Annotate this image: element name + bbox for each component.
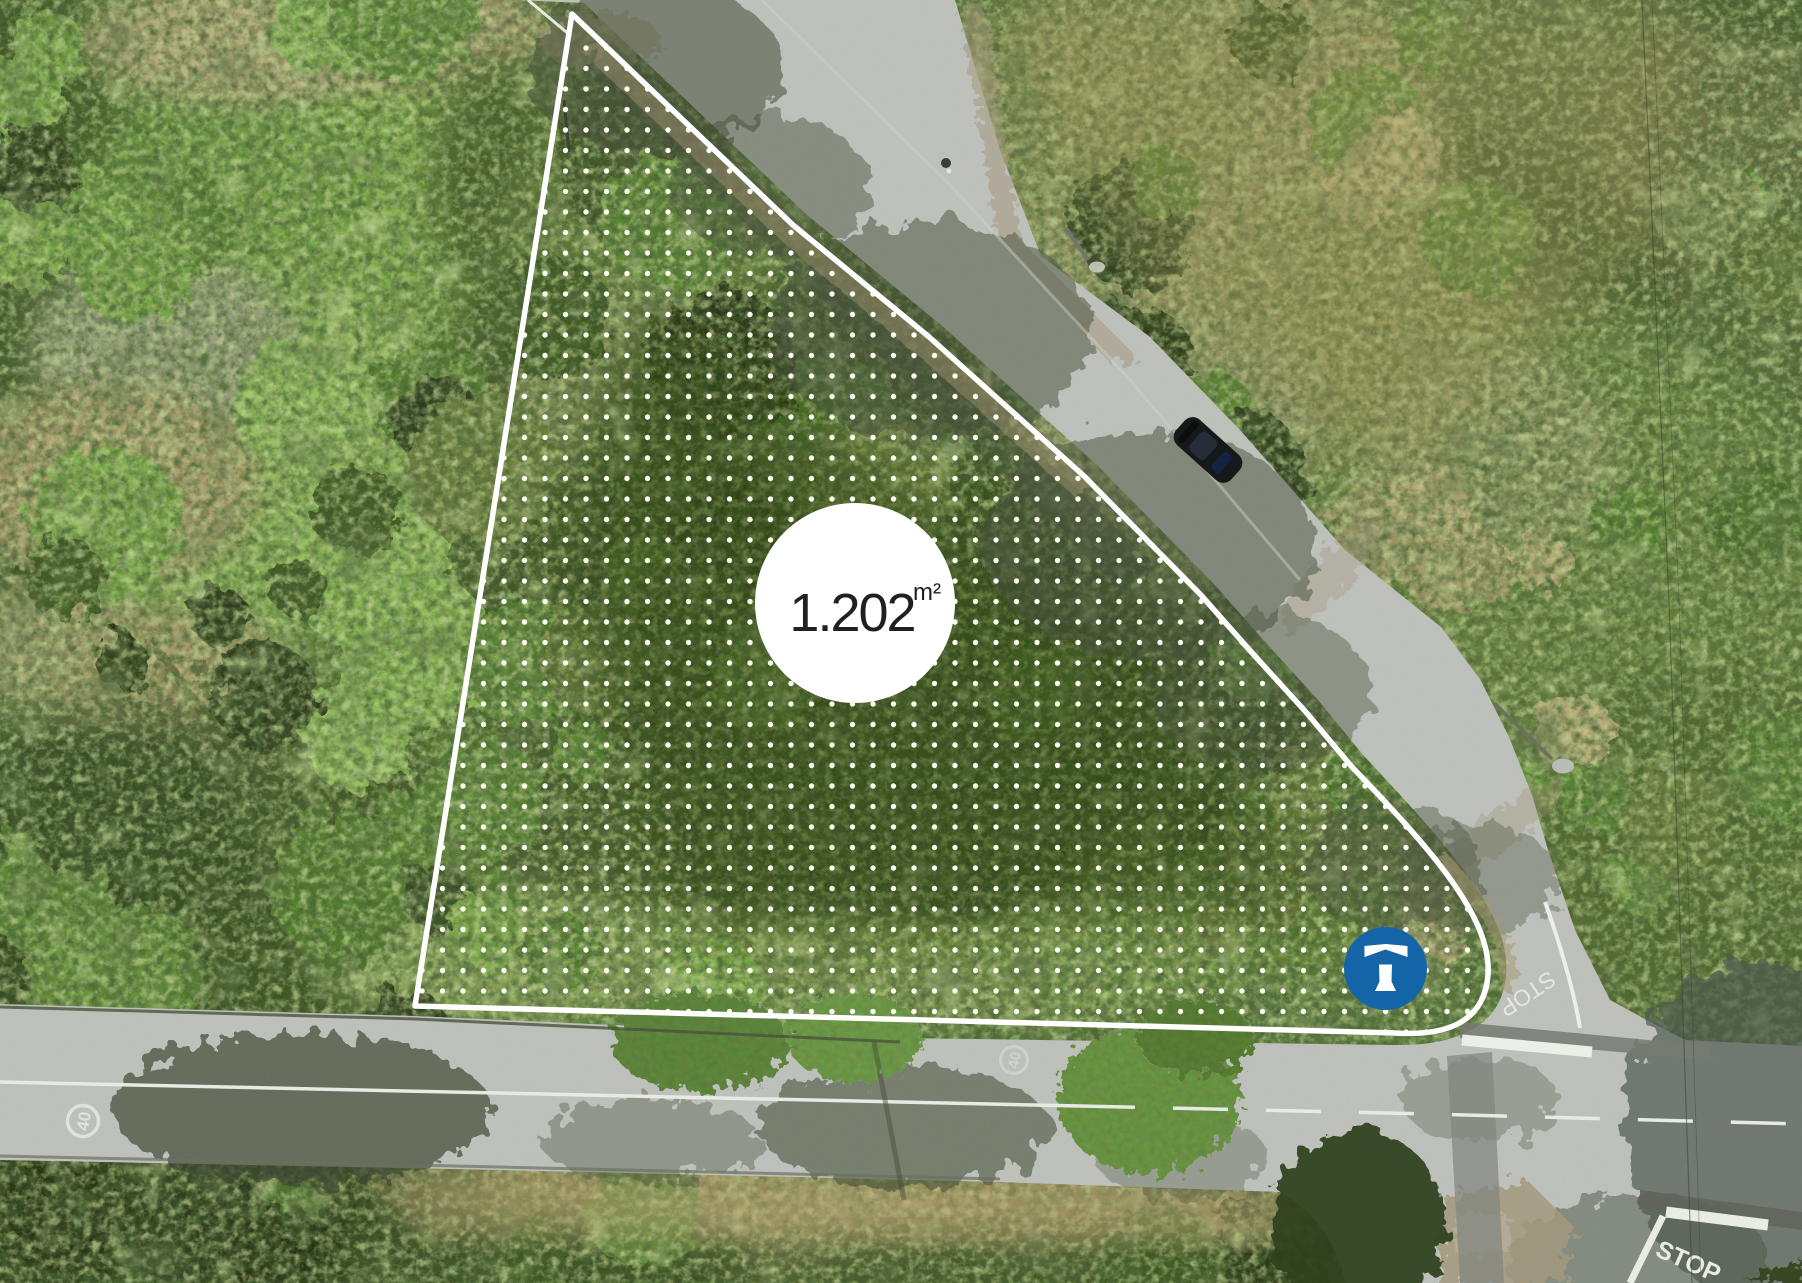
- svg-text:40: 40: [73, 1110, 95, 1132]
- svg-text:m²: m²: [913, 579, 941, 606]
- svg-text:40: 40: [1005, 1050, 1025, 1070]
- svg-text:1.202: 1.202: [789, 583, 914, 643]
